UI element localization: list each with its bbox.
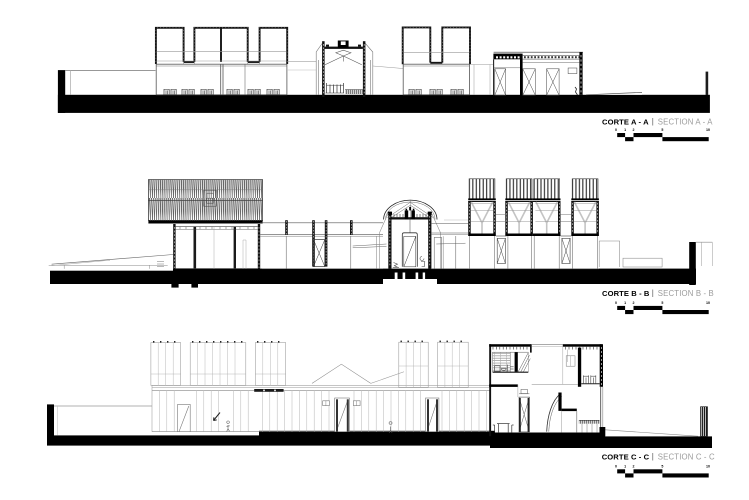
svg-text:SECTION A - A: SECTION A - A bbox=[658, 117, 713, 126]
svg-text:|: | bbox=[652, 452, 654, 461]
svg-text:SECTION B - B: SECTION B - B bbox=[658, 289, 714, 298]
svg-text:|: | bbox=[652, 289, 654, 298]
svg-text:SECTION C - C: SECTION C - C bbox=[658, 452, 715, 461]
svg-text:CORTE A - A: CORTE A - A bbox=[602, 117, 649, 126]
svg-text:CORTE B - B: CORTE B - B bbox=[602, 289, 650, 298]
svg-text:|: | bbox=[652, 117, 654, 126]
svg-text:CORTE C - C: CORTE C - C bbox=[602, 452, 650, 461]
